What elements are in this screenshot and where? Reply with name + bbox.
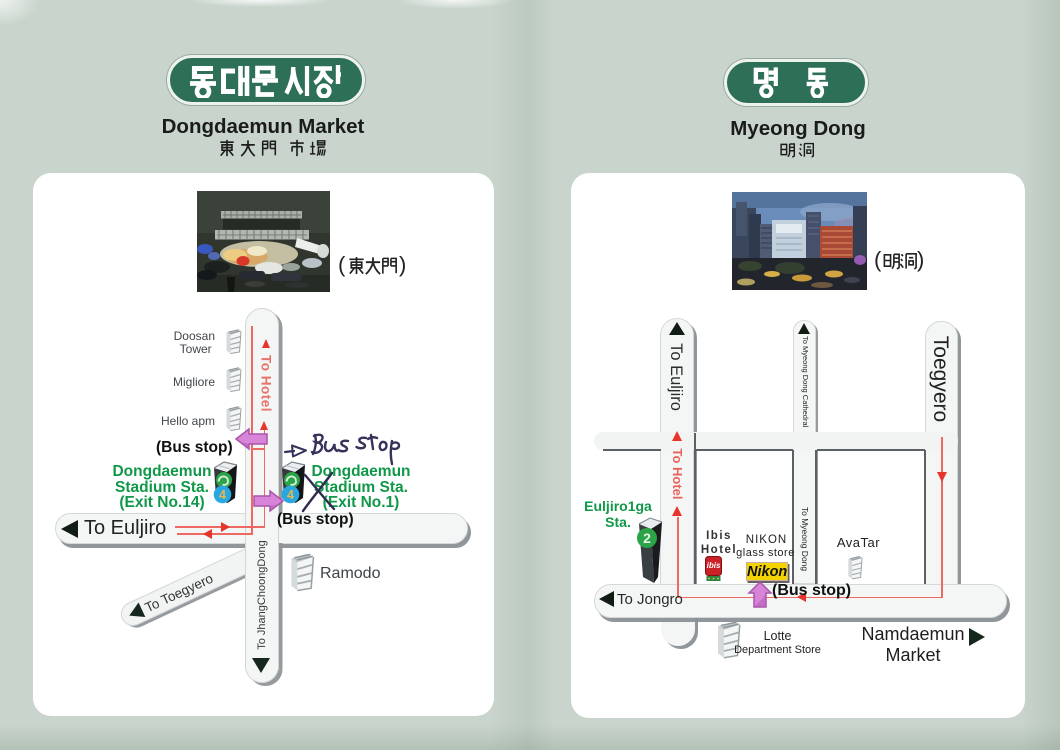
svg-text:2: 2 [643,530,651,546]
svg-text:ibis: ibis [707,561,721,570]
